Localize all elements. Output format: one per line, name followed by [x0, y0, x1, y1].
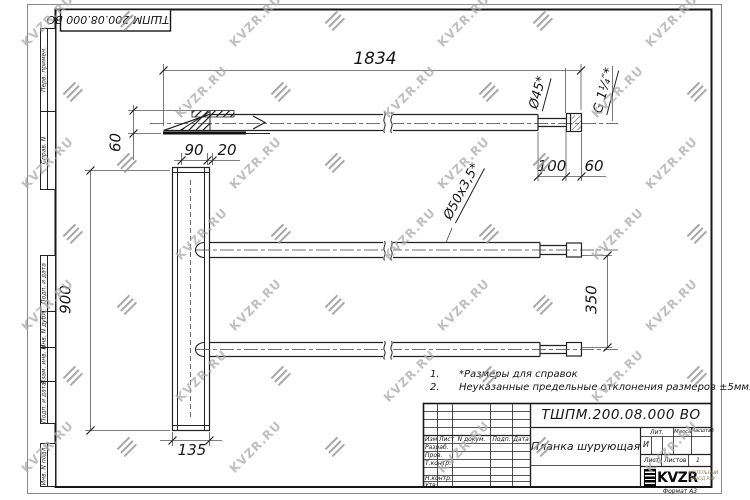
dim-plate-20: 20	[212, 143, 242, 158]
col-podp: Подп.	[492, 437, 511, 443]
col-izm: Изм	[425, 437, 437, 443]
col-data: Дата	[513, 437, 529, 443]
massa-header: Масса	[674, 430, 691, 436]
title-block-grid	[0, 0, 750, 500]
margin-label-perv-primen: Перв. примен.	[40, 30, 49, 110]
col-ndoc: N докум.	[455, 437, 488, 443]
note-2-number: 2.	[430, 383, 440, 393]
dim-plate-height-900: 900	[59, 280, 74, 320]
dim-end-100: 100	[536, 159, 568, 174]
row-utv: Утв.	[425, 483, 438, 489]
note-2-text: Неуказанные предельные отклонения размер…	[459, 383, 750, 393]
format-label: Формат А3	[650, 489, 710, 495]
row-razrab: Разраб.	[425, 445, 449, 451]
note-1-text: *Размеры для справок	[459, 370, 578, 380]
titleblock-part-name: Планка шурующая	[531, 441, 640, 452]
masshtab-header: Масштаб	[691, 430, 711, 435]
lit-header: Лит.	[641, 430, 673, 436]
row-tkontr: Т.контр.	[425, 461, 451, 467]
drawing-sheet: ТШПМ.200.08.000 ВО Перв. примен. Справ. …	[0, 0, 750, 500]
dim-length-1834: 1834	[340, 51, 410, 68]
top-stamp-doc-number: ТШПМ.200.08.000 ВО	[62, 14, 169, 25]
dim-spacing-350: 350	[585, 280, 600, 320]
margin-label-inv-podl: Инв. N подл.	[40, 426, 49, 500]
lit-value: И	[641, 441, 651, 449]
listov-label: Листов	[664, 458, 686, 464]
row-prov: Пров.	[425, 453, 442, 459]
titleblock-doc-number: ТШПМ.200.08.000 ВО	[531, 409, 711, 423]
dim-plate-90: 90	[178, 143, 210, 158]
list-label: Лист	[644, 458, 659, 464]
col-list: Лист	[439, 437, 454, 443]
dim-thread-60: 60	[580, 159, 608, 174]
listov-value: 1	[696, 458, 700, 464]
kvzr-logo-sub2: ЗАВОД РЭУ	[689, 477, 715, 482]
dim-bracket-60: 60	[109, 126, 124, 160]
kvzr-emblem	[644, 469, 656, 487]
margin-label-sprav: Справ. N	[40, 111, 49, 191]
note-1-number: 1.	[430, 370, 440, 380]
dim-plate-width-135: 135	[174, 443, 210, 458]
kvzr-logo-sub1: КОТЕЛЬНЫЙ	[689, 471, 718, 476]
